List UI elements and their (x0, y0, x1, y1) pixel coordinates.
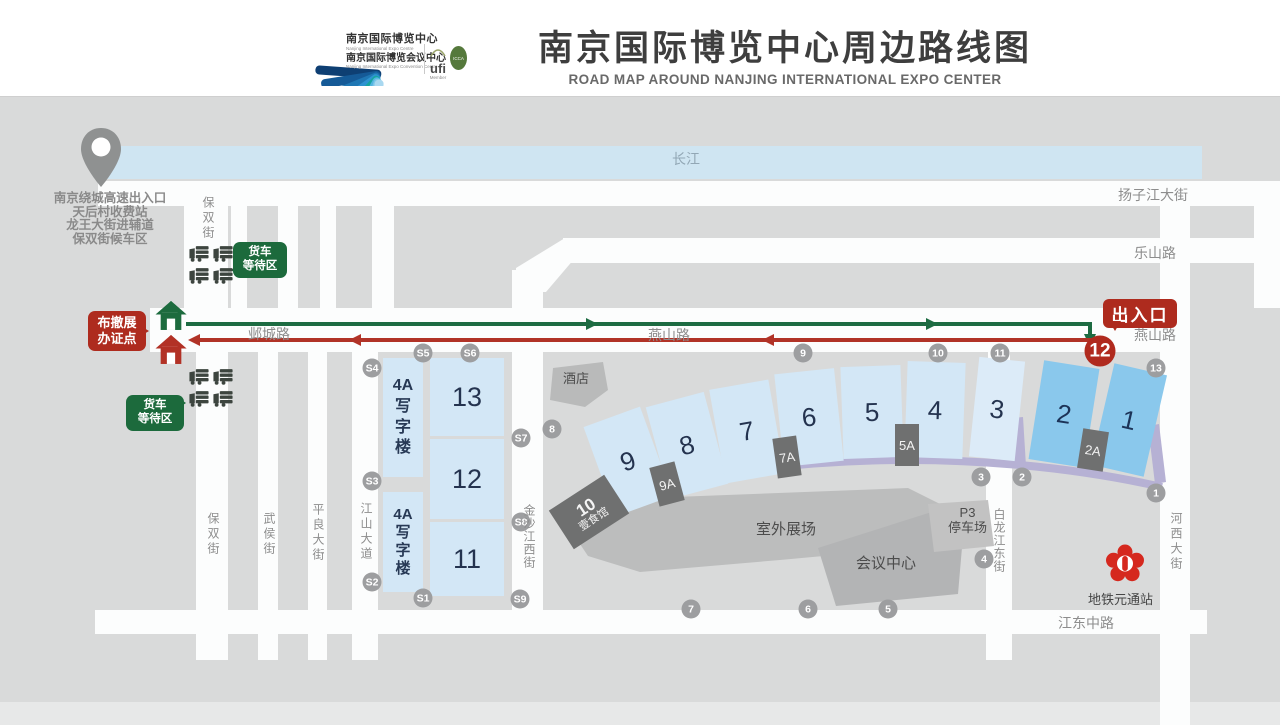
street-label-yanshan: 燕山路 (648, 325, 690, 345)
road-yangzijiang (98, 181, 1280, 206)
note-line: 保双街候车区 (28, 233, 192, 247)
hall-11: 11 (430, 522, 504, 596)
truck-icon (188, 245, 210, 262)
gate-3: 3 (972, 468, 991, 487)
gate-s7: S7 (512, 429, 531, 448)
gate-s2: S2 (363, 573, 382, 592)
road-east-edge (1254, 206, 1280, 308)
hall-13: 13 (430, 358, 504, 436)
gate-13: 13 (1147, 359, 1166, 378)
gate-s4: S4 (363, 359, 382, 378)
yangtze-river (98, 146, 1202, 179)
permit-point-badge: 布撤展 办证点 (88, 311, 146, 351)
gate-s5: S5 (414, 344, 433, 363)
icca-badge: ICCA (450, 46, 467, 70)
gate-5: 5 (879, 600, 898, 619)
truck-icon (188, 267, 210, 284)
office-tower-4a-north: 4A写字楼 (383, 358, 423, 477)
street-label-yanshan-east: 燕山路 (1134, 325, 1176, 345)
page-title-block: 南京国际博览中心周边路线图 ROAD MAP AROUND NANJING IN… (505, 20, 1065, 87)
river-label: 长江 (672, 149, 700, 169)
metro-station-label: 地铁元通站 (1088, 589, 1153, 608)
street-label-hexi: 河西大街 (1168, 512, 1185, 572)
gate-11: 11 (991, 344, 1010, 363)
map-pin-icon (78, 126, 124, 190)
logo-divider (424, 44, 425, 74)
gate-s9: S9 (511, 590, 530, 609)
gate-6: 6 (799, 600, 818, 619)
map-bottom-margin (0, 702, 1280, 725)
gate-1: 1 (1147, 484, 1166, 503)
truck-icon (188, 368, 210, 385)
street-label-jiangdong: 江东中路 (1058, 613, 1114, 633)
street-label-wuhou: 武侯街 (261, 512, 278, 557)
street-label-jinshajiang: 金沙江西街 (521, 504, 538, 569)
note-line: 南京绕城高速出入口 (28, 192, 192, 206)
truck-icon (212, 245, 234, 262)
street-label-yangzijiang: 扬子江大街 (1118, 185, 1188, 205)
outdoor-exhibition-label: 室外展场 (756, 518, 816, 539)
road-hexi (1160, 206, 1190, 725)
road-lane-upper-3 (320, 194, 336, 308)
gate-10: 10 (929, 344, 948, 363)
truck-icon (212, 368, 234, 385)
note-line: 天后村收费站 (28, 206, 192, 220)
street-label-pingliang: 平良大街 (310, 503, 327, 563)
red-house-icon (153, 334, 189, 365)
truck-waiting-badge-north: 货车 等待区 (233, 242, 287, 278)
page-subtitle: ROAD MAP AROUND NANJING INTERNATIONAL EX… (505, 72, 1065, 87)
office-tower-4a-south: 4A写字楼 (383, 492, 423, 592)
truck-icon (188, 390, 210, 407)
truck-waiting-badge-south: 货车 等待区 (126, 395, 184, 431)
road-wuhou (258, 352, 278, 660)
p3-parking-label: P3 停车场 (948, 506, 987, 536)
hall-12: 12 (430, 439, 504, 519)
truck-icon (212, 390, 234, 407)
hall-3: 3 (969, 357, 1025, 461)
gate-s1: S1 (414, 589, 433, 608)
page-header: 南京国际博览中心 Nanjing International Expo Cent… (0, 0, 1280, 97)
road-lane-upper-4 (372, 194, 394, 308)
street-label-bailongjiang: 白龙江东街 (991, 508, 1008, 573)
ufi-badge: ufi Member (428, 44, 448, 80)
gate-2: 2 (1013, 468, 1032, 487)
green-house-icon (153, 300, 189, 331)
gate-7: 7 (682, 600, 701, 619)
hall-5a: 5A (895, 424, 919, 466)
gate-8: 8 (543, 420, 562, 439)
street-label-leshan: 乐山路 (1134, 243, 1176, 263)
conference-center-label: 会议中心 (856, 552, 916, 573)
street-label-baoshuang-north: 保双街 (200, 196, 217, 241)
street-label-jiangshan: 江山大道 (358, 502, 375, 562)
hotel-label: 酒店 (563, 368, 589, 387)
road-map-page: 4A写字楼 4A写字楼 13 12 11 9 8 7 6 5 4 3 2 1 9… (0, 0, 1280, 725)
highway-note: 南京绕城高速出入口 天后村收费站 龙王大街进辅道 保双街候车区 (28, 192, 192, 246)
gate-s3: S3 (363, 472, 382, 491)
truck-icon (212, 267, 234, 284)
gate-12-main-entrance: 12 (1085, 336, 1116, 367)
gate-s6: S6 (461, 344, 480, 363)
metro-logo-icon (1106, 544, 1144, 584)
entrance-exit-badge: 出入口 (1103, 299, 1177, 328)
note-line: 龙王大街进辅道 (28, 219, 192, 233)
street-label-baoshuang: 保双街 (205, 512, 222, 557)
gate-9: 9 (794, 344, 813, 363)
page-title: 南京国际博览中心周边路线图 (505, 20, 1065, 71)
street-label-yecheng: 邺城路 (248, 324, 290, 344)
ufi-arc-icon (430, 48, 446, 57)
